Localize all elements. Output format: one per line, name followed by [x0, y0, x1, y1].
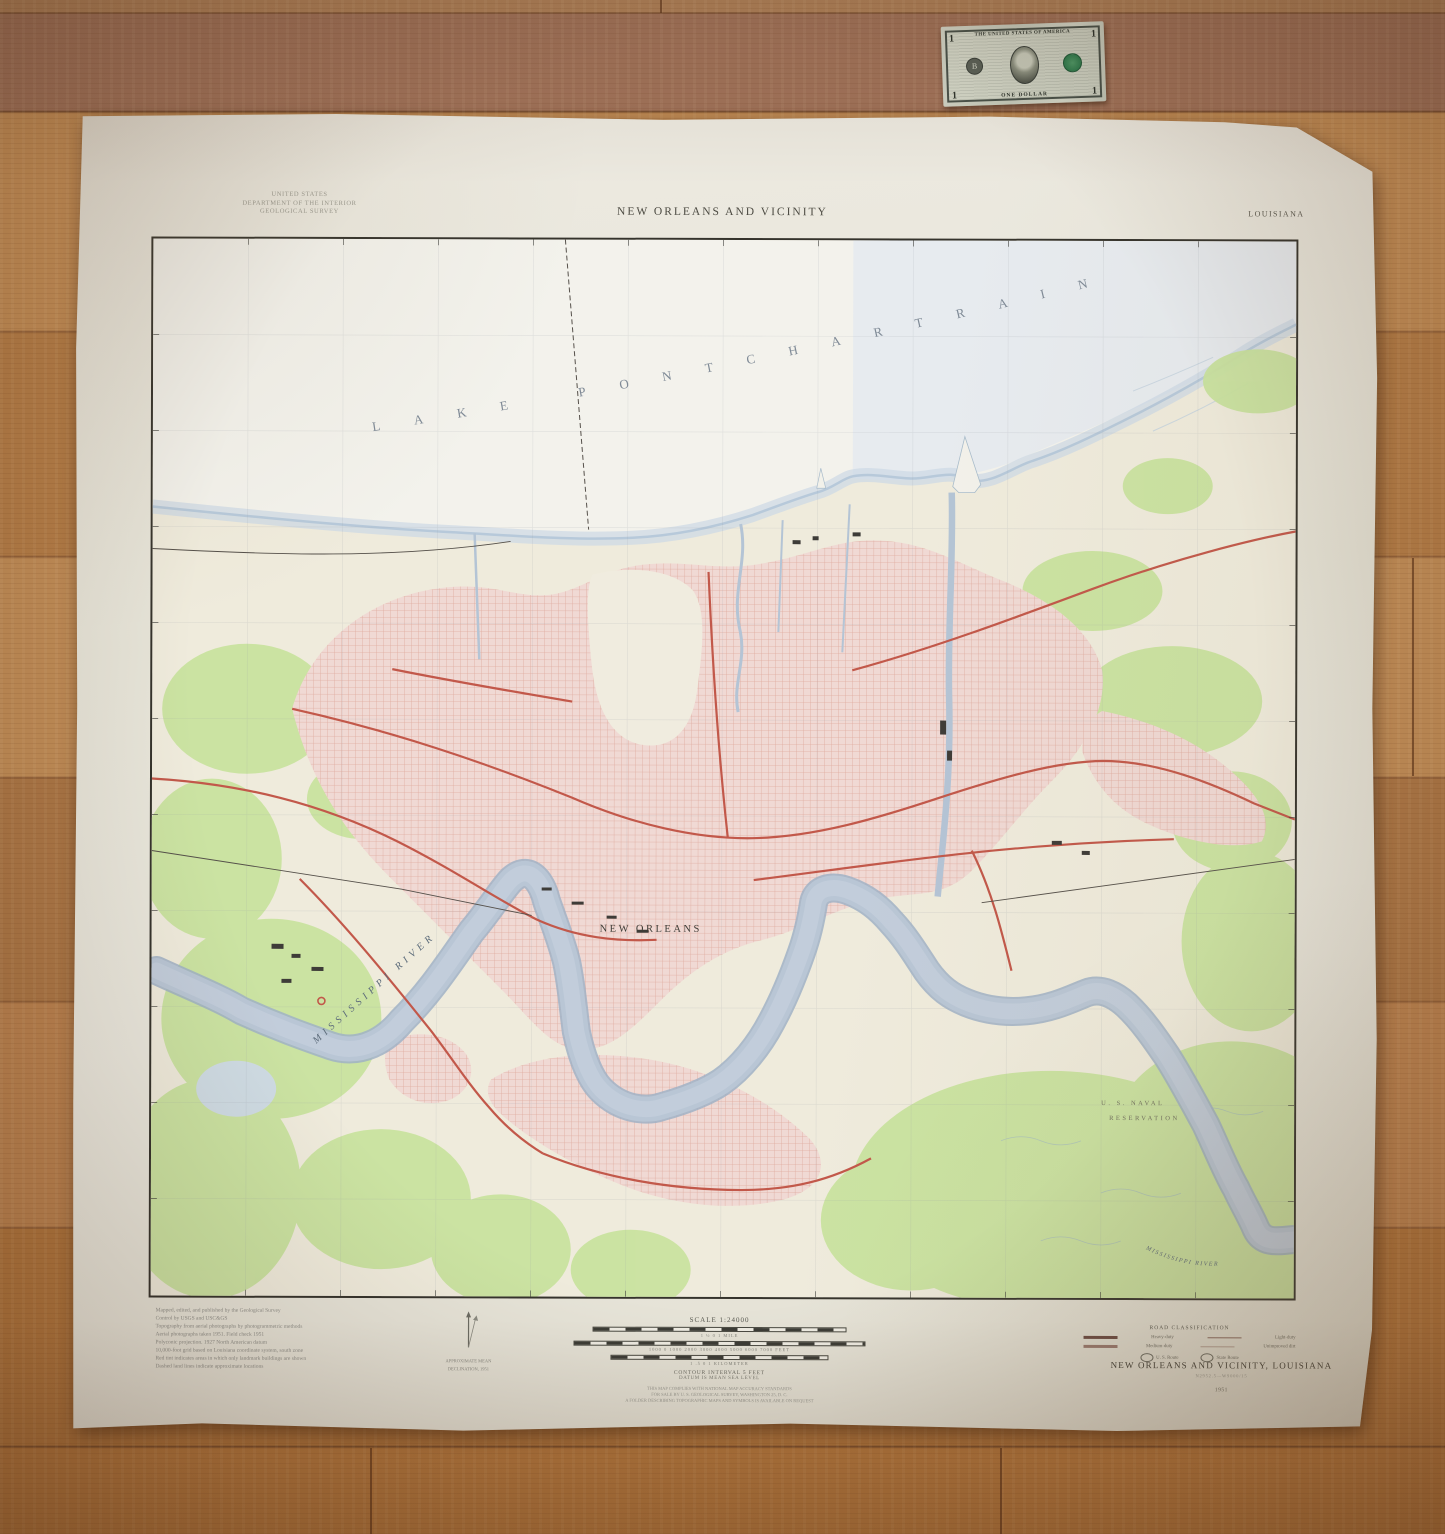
- footer-year: 1951: [1071, 1387, 1371, 1394]
- denomination-numeral: 1: [1091, 28, 1096, 39]
- credits-block: Mapped, edited, and published by the Geo…: [155, 1307, 425, 1372]
- scale-block: SCALE 1:24000 1 ½ 0 1 MILE 1000 0 1000 2…: [549, 1316, 889, 1405]
- credit-line: Dashed land lines indicate approximate l…: [155, 1363, 425, 1372]
- scale-bar-km: [610, 1355, 828, 1361]
- city-label: NEW ORLEANS: [600, 924, 702, 935]
- naval-reservation-label-2: RESERVATION: [1109, 1115, 1180, 1122]
- map-title: NEW ORLEANS AND VICINITY: [522, 205, 922, 218]
- light-duty-line-sample: [1207, 1337, 1241, 1339]
- agency-imprint: UNITED STATES DEPARTMENT OF THE INTERIOR…: [169, 191, 429, 217]
- scale-feet-labels: 1000 0 1000 2000 3000 4000 5000 6000 700…: [549, 1347, 889, 1353]
- footer-grid-reference: N2952.5—W9000/15: [1071, 1373, 1371, 1379]
- photo-of-map-on-floor: UNITED STATES DEPARTMENT OF THE INTERIOR…: [0, 0, 1445, 1534]
- map-neatline: LAKE PONTCHARTRAIN NEW ORLEANS MISSISSIP…: [149, 236, 1299, 1300]
- road-class-heading: ROAD CLASSIFICATION: [1084, 1325, 1296, 1332]
- pond: [196, 1061, 276, 1117]
- floor-plank-seam: [1412, 558, 1414, 776]
- map-face: LAKE PONTCHARTRAIN NEW ORLEANS MISSISSIP…: [151, 238, 1297, 1298]
- unimproved-line-sample: [1201, 1346, 1235, 1348]
- floor-plank-seam: [1000, 1448, 1002, 1534]
- road-class-label: Light-duty: [1275, 1335, 1296, 1340]
- road-class-label: Heavy-duty: [1151, 1335, 1174, 1340]
- agency-line: GEOLOGICAL SURVEY: [169, 208, 429, 217]
- heavy-duty-line-sample: [1084, 1336, 1118, 1339]
- floor-plank-seam: [660, 0, 662, 13]
- declination-arrow-icon: [450, 1309, 486, 1351]
- medium-duty-line-sample: [1083, 1345, 1117, 1348]
- one-dollar-bill: THE UNITED STATES OF AMERICA B 1 1 1 1 O…: [941, 21, 1107, 107]
- scale-bar-miles: [593, 1327, 847, 1333]
- declination-caption-1: APPROXIMATE MEAN: [433, 1358, 503, 1364]
- footer-map-title: NEW ORLEANS AND VICINITY, LOUISIANA: [1071, 1360, 1371, 1371]
- scale-heading: SCALE 1:24000: [550, 1316, 890, 1325]
- declination-diagram: APPROXIMATE MEAN DECLINATION, 1951: [433, 1309, 503, 1371]
- floor-plank-seam: [370, 1448, 372, 1534]
- map-paper: UNITED STATES DEPARTMENT OF THE INTERIOR…: [71, 110, 1381, 1435]
- map-sheet: UNITED STATES DEPARTMENT OF THE INTERIOR…: [73, 112, 1380, 1434]
- road-classification-legend: ROAD CLASSIFICATION Heavy-duty Light-dut…: [1083, 1325, 1295, 1363]
- denomination-numeral: 1: [949, 33, 954, 44]
- naval-reservation-label-1: U. S. NAVAL: [1101, 1100, 1164, 1107]
- map-note: A FOLDER DESCRIBING TOPOGRAPHIC MAPS AND…: [549, 1398, 889, 1405]
- declination-caption-2: DECLINATION, 1951: [433, 1366, 503, 1372]
- map-state-label: LOUISIANA: [1194, 209, 1304, 218]
- road-class-label: Unimproved dirt: [1263, 1344, 1295, 1349]
- datum-note: DATUM IS MEAN SEA LEVEL: [549, 1376, 889, 1382]
- scale-km-labels: 1 .5 0 1 KILOMETER: [549, 1361, 889, 1367]
- scale-bar-feet: [574, 1341, 866, 1347]
- scale-miles-labels: 1 ½ 0 1 MILE: [550, 1333, 890, 1339]
- road-class-label: Medium-duty: [1146, 1344, 1172, 1349]
